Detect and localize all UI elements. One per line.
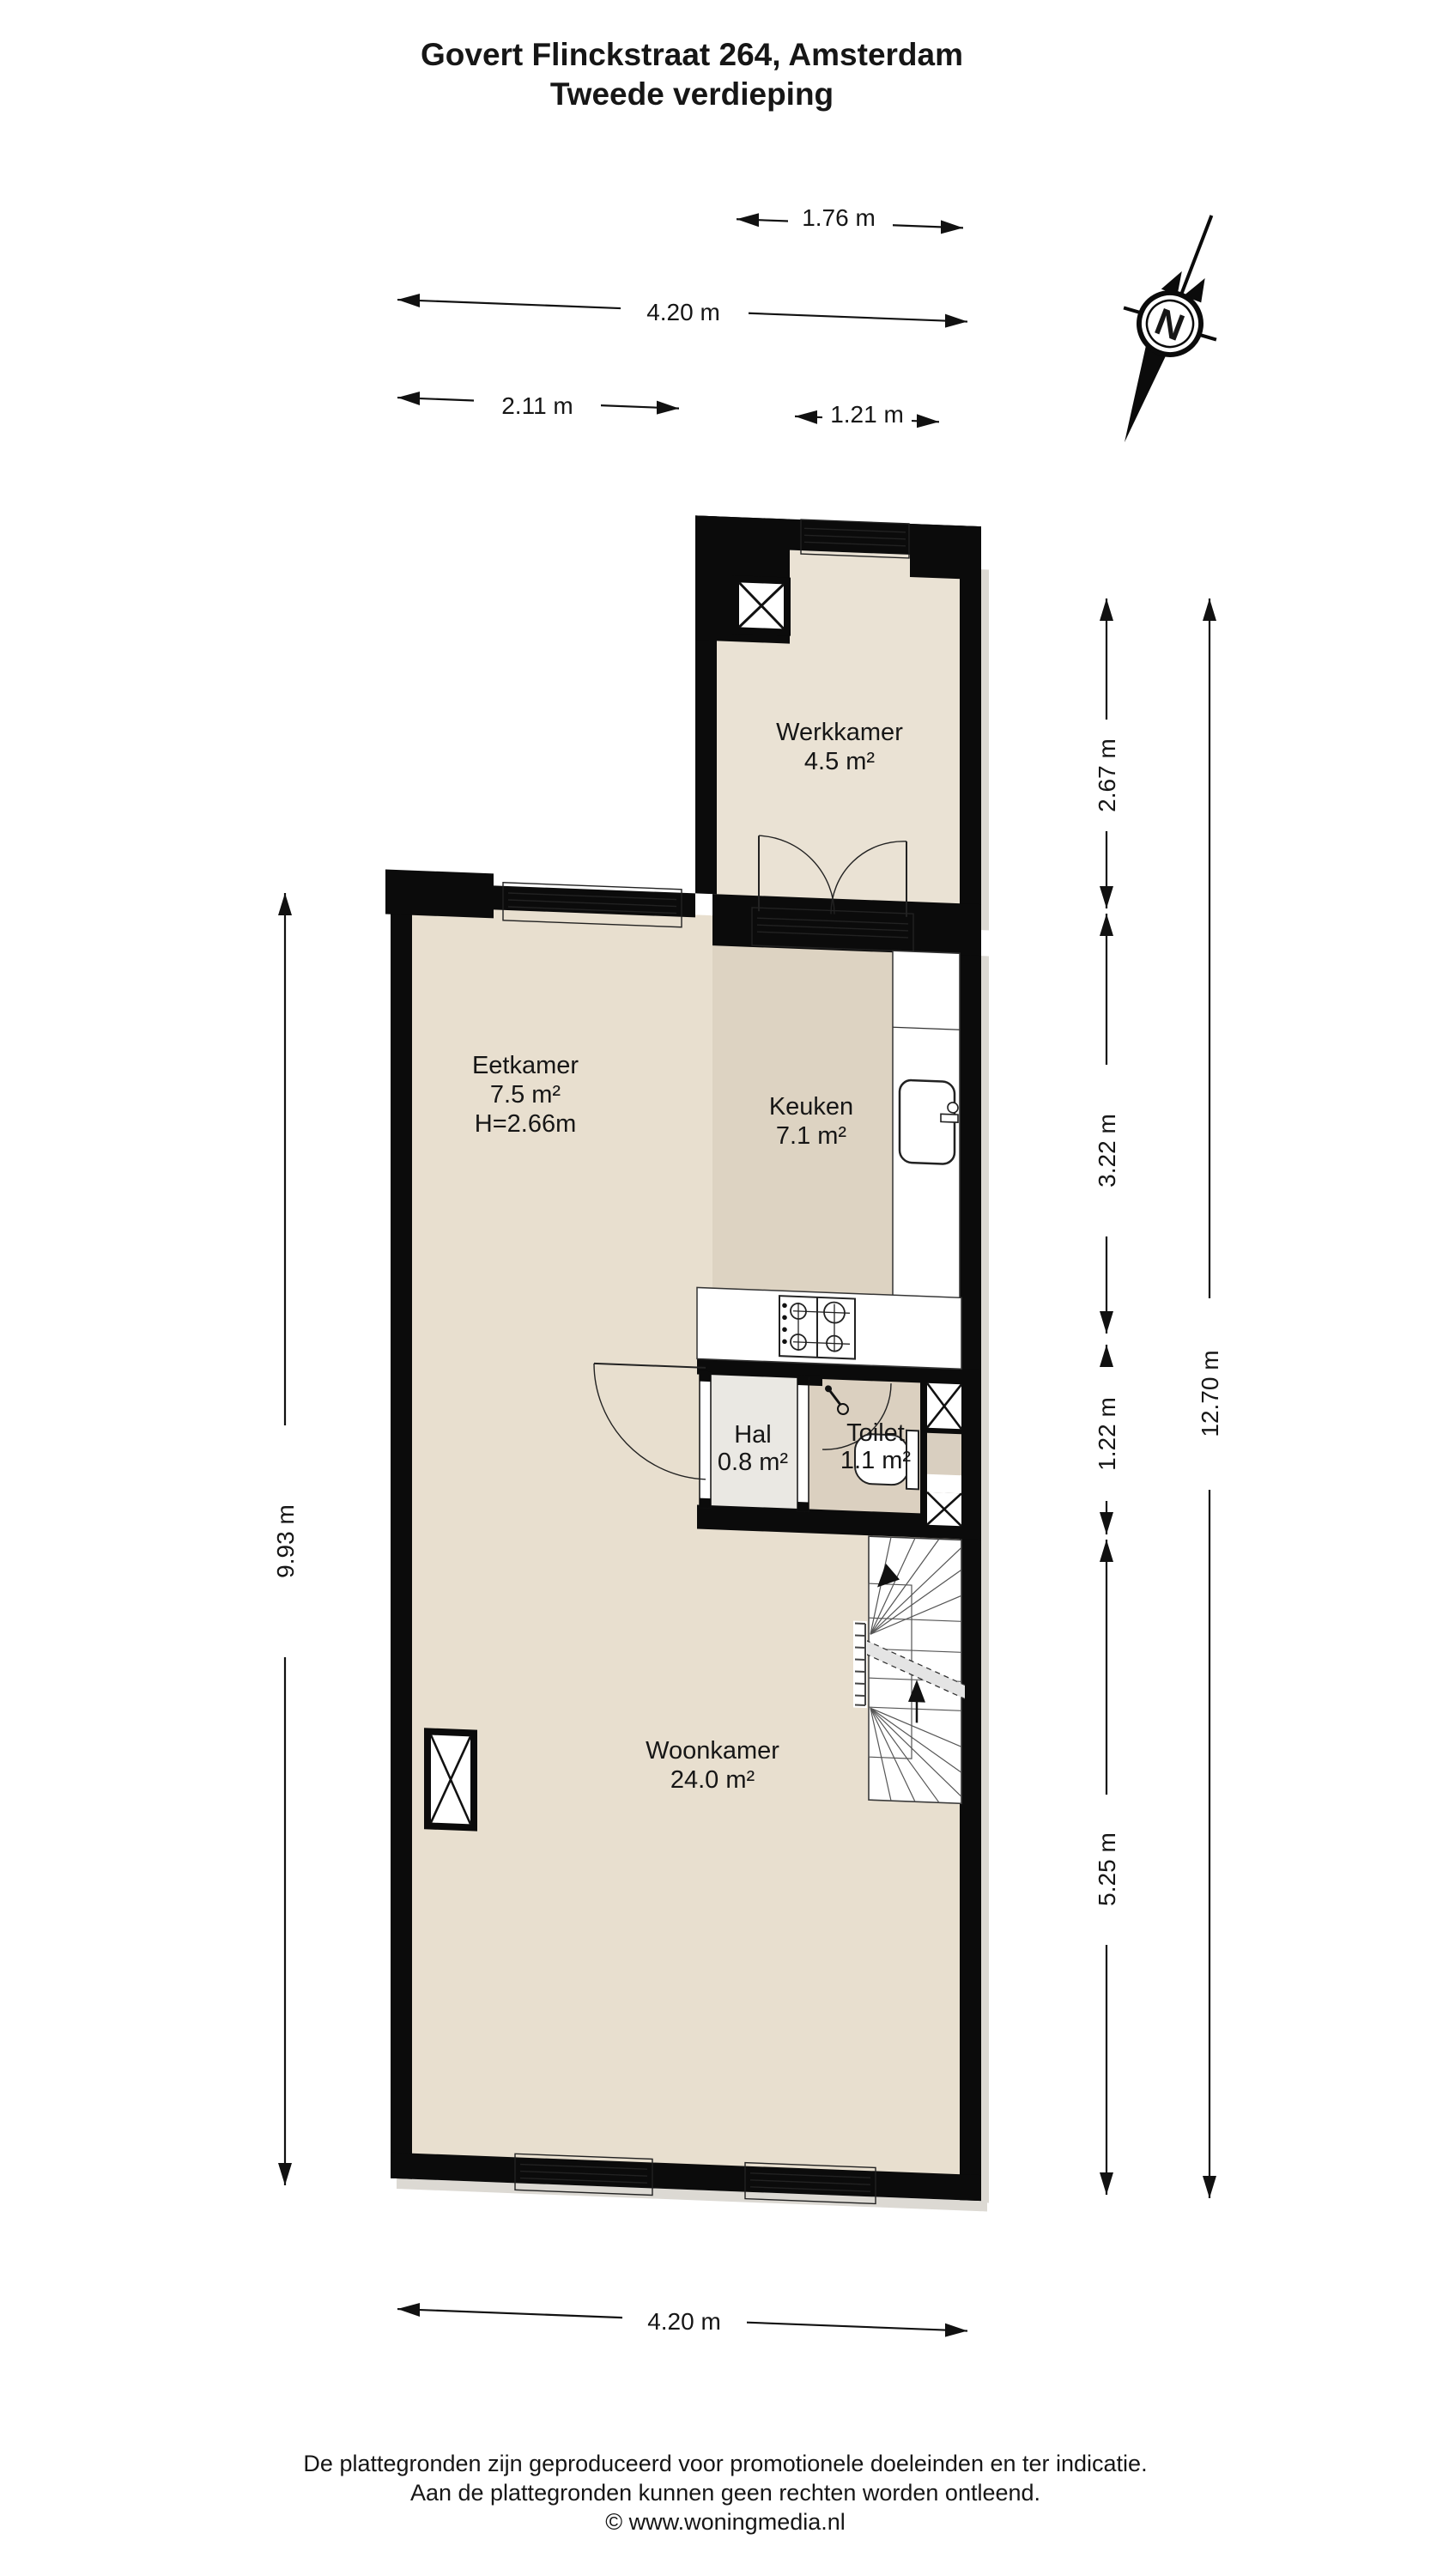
shaft-box-werkkamer [732, 575, 791, 636]
dim-right-werkkamer: 2.67 m [1094, 738, 1120, 812]
woonkamer-label: Woonkamer [646, 1737, 779, 1765]
dim-bottom-full: 4.20 m [647, 2308, 721, 2335]
footer-line2: Aan de plattegronden kunnen geen rechten… [410, 2480, 1040, 2506]
stove [779, 1296, 855, 1358]
footer-disclaimer: De plattegronden zijn geproduceerd voor … [303, 2451, 1147, 2535]
chimney-box-woonkamer [424, 1728, 477, 1831]
staircase [853, 1535, 965, 1803]
dim-right-woonkamer: 5.25 m [1094, 1832, 1120, 1906]
eetkamer-height: H=2.66m [475, 1110, 576, 1138]
stair-railing [853, 1620, 867, 1708]
footer-line3: © www.woningmedia.nl [605, 2509, 846, 2535]
dim-left-main: 9.93 m [272, 1504, 299, 1578]
eetkamer-area: 7.5 m² [490, 1081, 561, 1109]
dim-right-keuken: 3.22 m [1094, 1114, 1120, 1188]
toilet-area: 1.1 m² [840, 1447, 912, 1474]
floorplan-page: Govert Flinckstraat 264, Amsterdam Tweed… [0, 0, 1449, 2576]
werkkamer-label: Werkkamer [776, 719, 903, 746]
dim-right-total: 12.70 m [1197, 1350, 1223, 1437]
kitchen-sink [900, 1080, 958, 1165]
woonkamer-area: 24.0 m² [670, 1766, 755, 1794]
page-title-line2: Tweede verdieping [550, 76, 834, 112]
keuken-area: 7.1 m² [776, 1122, 847, 1150]
werkkamer-area: 4.5 m² [804, 748, 876, 775]
eetkamer-label: Eetkamer [472, 1052, 579, 1079]
compass-north-icon: N [1079, 198, 1258, 460]
dim-right-hal: 1.22 m [1094, 1397, 1120, 1471]
dim-top-werkkamer: 1.76 m [802, 204, 876, 231]
hal-area: 0.8 m² [718, 1449, 789, 1476]
dim-top-left: 2.11 m [501, 392, 573, 419]
shadow-right-werkkamer [981, 569, 989, 930]
dim-top-right: 1.21 m [830, 401, 904, 428]
shadow-right-main [981, 956, 989, 2202]
dim-top-full: 4.20 m [646, 299, 720, 325]
page-title-line1: Govert Flinckstraat 264, Amsterdam [421, 37, 963, 72]
footer-line1: De plattegronden zijn geproduceerd voor … [303, 2451, 1147, 2476]
plan-drawing [385, 199, 989, 2339]
toilet-label: Toilet [846, 1419, 905, 1447]
keuken-label: Keuken [769, 1093, 853, 1121]
hal-label: Hal [734, 1421, 772, 1449]
shaft-boxes-toilet [927, 1383, 961, 1527]
